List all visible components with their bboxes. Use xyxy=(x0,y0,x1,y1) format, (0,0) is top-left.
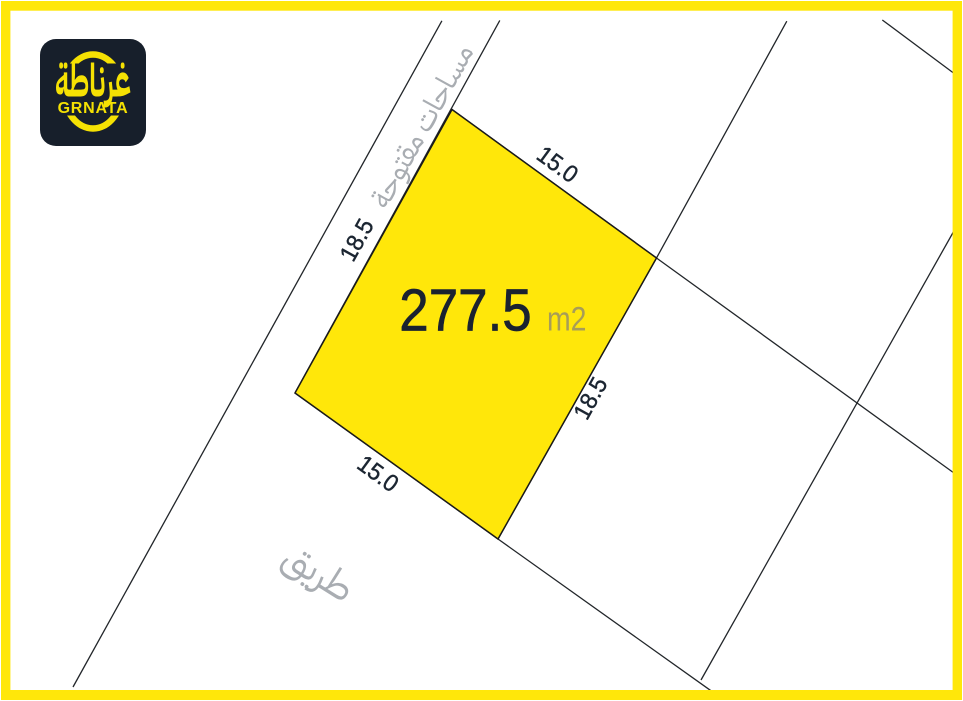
svg-text:GRNATA: GRNATA xyxy=(58,100,129,117)
svg-text:277.5: 277.5 xyxy=(399,277,532,344)
svg-text:m2: m2 xyxy=(547,301,587,339)
